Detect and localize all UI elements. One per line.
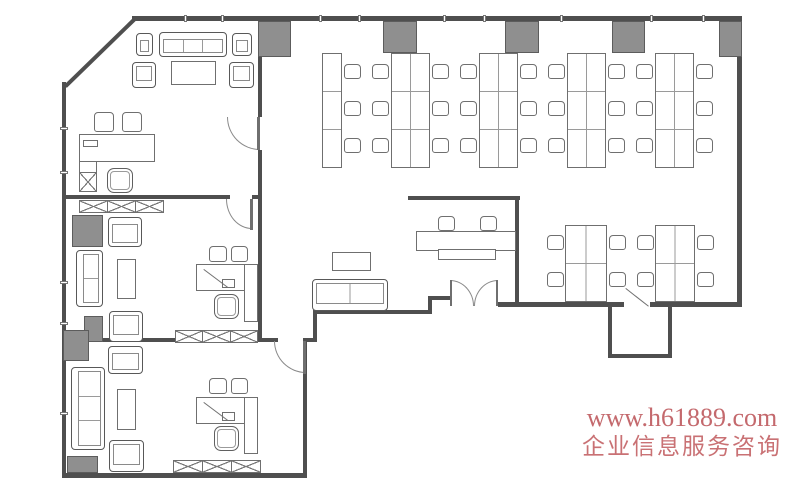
floor-plan-canvas: www.h61889.com 企业信息服务咨询 (0, 0, 812, 493)
office-chair (548, 64, 565, 79)
office-chair (609, 272, 626, 287)
office-chair (697, 272, 714, 287)
storage-cabinet (230, 330, 258, 343)
watermark-url: www.h61889.com (576, 403, 788, 432)
storage-cabinet (202, 330, 230, 343)
wall (306, 338, 317, 342)
door-swing-arc (274, 341, 306, 373)
wall (408, 196, 520, 200)
office-chair (344, 64, 361, 79)
sofa-seat (83, 254, 99, 303)
wall (258, 150, 262, 196)
storage-cabinet (79, 200, 108, 213)
storage-cabinet (231, 460, 261, 473)
storage-cabinet (135, 200, 164, 213)
window-tick (60, 322, 68, 325)
office-chair (372, 138, 389, 153)
door-swing-arc (226, 199, 252, 229)
wall (252, 195, 262, 199)
door-leaf (450, 280, 452, 306)
wall-diagonal (64, 17, 137, 88)
wall (64, 195, 230, 199)
sofa-seat (113, 315, 139, 335)
desk-bank (391, 53, 430, 168)
storage-cabinet (175, 330, 203, 343)
wall (650, 302, 742, 307)
sofa-seat (236, 40, 248, 52)
structural-column (505, 21, 539, 53)
office-chair (609, 235, 626, 250)
structural-column (383, 21, 417, 53)
executive-chair (214, 294, 239, 319)
office-chair (372, 101, 389, 116)
wall (62, 82, 66, 478)
office-chair (432, 101, 449, 116)
executive-chair (107, 168, 133, 193)
office-chair (696, 64, 713, 79)
office-chair (432, 138, 449, 153)
structural-column (63, 330, 89, 361)
sofa-seat (112, 224, 138, 243)
sofa-seat (140, 40, 149, 52)
wall (313, 310, 317, 341)
door-leaf (496, 280, 498, 306)
storage-cabinet (173, 460, 203, 473)
office-chair (548, 138, 565, 153)
desk-bank (479, 53, 518, 168)
guest-chair (231, 246, 248, 262)
desk-bank (567, 53, 606, 168)
office-chair (608, 138, 625, 153)
office-chair (344, 138, 361, 153)
office-chair (520, 64, 537, 79)
office-chair (432, 64, 449, 79)
lobby-sofa (312, 279, 388, 311)
office-chair (520, 138, 537, 153)
desk-bank (565, 225, 607, 302)
armchair (109, 311, 143, 342)
window-tick (184, 15, 187, 22)
office-chair (608, 101, 625, 116)
sofa-two-seat (76, 250, 103, 307)
window-tick (650, 15, 653, 22)
door-leaf (303, 341, 306, 374)
office-chair (608, 64, 625, 79)
guest-chair (209, 246, 227, 262)
guest-chair (231, 378, 248, 394)
sofa-seat (136, 66, 152, 81)
guest-chair (209, 378, 227, 394)
sofa-seat (112, 353, 139, 370)
wall (608, 354, 672, 358)
executive-desk (79, 134, 155, 162)
door-swing-arc (227, 117, 260, 150)
reception-chair (480, 216, 497, 231)
window-tick (60, 412, 68, 415)
door-leaf-diagonal (625, 288, 649, 307)
watermark-caption: 企业信息服务咨询 (576, 434, 788, 460)
door-swing-arc (450, 280, 474, 306)
window-tick (443, 15, 446, 22)
reception-chair (438, 216, 455, 231)
window-tick (319, 15, 322, 22)
sofa-three-seat (159, 32, 227, 57)
armchair (229, 62, 254, 88)
structural-column (258, 21, 291, 57)
storage-cabinet (107, 200, 136, 213)
desk-bank (655, 225, 695, 302)
window-tick (358, 15, 361, 22)
window-tick (60, 171, 68, 174)
desk-bank (655, 53, 694, 168)
sofa-seat (163, 39, 223, 53)
office-chair (547, 272, 564, 287)
structural-column (612, 21, 645, 53)
office-chair (548, 101, 565, 116)
office-chair (636, 101, 653, 116)
armchair (232, 33, 252, 56)
window-tick (60, 281, 68, 284)
wall (737, 16, 742, 307)
wall (62, 473, 307, 478)
door-swing-arc (474, 280, 498, 306)
sofa-seat (78, 371, 101, 446)
armchair (136, 33, 153, 56)
armchair (108, 217, 142, 247)
armchair (132, 62, 156, 88)
desk-keyboard (83, 140, 98, 147)
sofa-seat (233, 66, 250, 81)
coffee-table (171, 61, 216, 85)
structural-column (67, 456, 98, 473)
armchair (108, 346, 143, 374)
structural-column (719, 21, 742, 57)
desk-return (244, 397, 258, 454)
window-tick (60, 127, 68, 130)
office-chair (637, 235, 654, 250)
guest-chair (94, 112, 114, 132)
watermark: www.h61889.com 企业信息服务咨询 (576, 403, 788, 460)
lobby-table (332, 252, 371, 271)
coffee-table (117, 259, 136, 299)
wall (515, 196, 519, 307)
coffee-table (117, 389, 136, 430)
wall (258, 196, 262, 342)
reception-desk (416, 231, 516, 251)
window-tick (702, 15, 705, 22)
desk-return (244, 264, 258, 322)
desk-bank (322, 53, 342, 168)
office-chair (460, 138, 477, 153)
reception-tray (438, 249, 496, 260)
office-chair (344, 101, 361, 116)
office-chair (460, 101, 477, 116)
office-chair (372, 64, 389, 79)
office-chair (636, 138, 653, 153)
sofa-seat (113, 444, 140, 465)
window-tick (221, 15, 224, 22)
executive-chair (214, 426, 239, 451)
wall (668, 307, 672, 358)
office-chair (696, 138, 713, 153)
office-chair (696, 101, 713, 116)
office-chair (637, 272, 654, 287)
office-chair (520, 101, 537, 116)
office-chair (547, 235, 564, 250)
structural-column (72, 215, 103, 247)
armchair (109, 440, 144, 472)
sofa-three-seat (71, 367, 105, 450)
sofa-seat (316, 283, 384, 304)
office-chair (460, 64, 477, 79)
window-tick (483, 15, 486, 22)
office-chair (697, 235, 714, 250)
door-leaf (257, 117, 260, 150)
wall (608, 307, 612, 358)
storage-cabinet (79, 172, 97, 192)
guest-chair (122, 112, 142, 132)
office-chair (636, 64, 653, 79)
storage-cabinet (202, 460, 232, 473)
window-tick (560, 15, 563, 22)
door-leaf (250, 199, 253, 230)
